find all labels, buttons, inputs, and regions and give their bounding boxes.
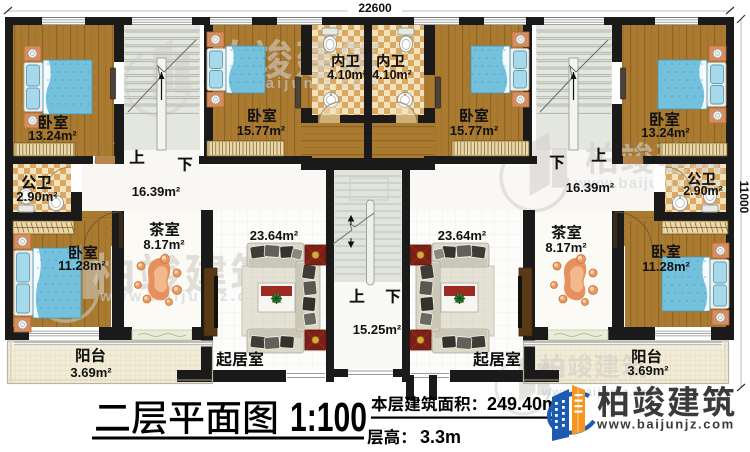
svg-text:3.3m: 3.3m [420,427,461,447]
svg-text:1:100: 1:100 [290,394,367,440]
svg-text:11.28m²: 11.28m² [58,258,106,273]
svg-text:16.39m²: 16.39m² [566,180,615,195]
svg-text:4.10m²: 4.10m² [327,68,367,82]
svg-text:3.69m²: 3.69m² [627,363,669,378]
svg-text:13.24m²: 13.24m² [641,125,690,140]
svg-text:2.90m²: 2.90m² [16,189,58,204]
svg-text:11.28m²: 11.28m² [642,259,690,274]
svg-text:8.17m²: 8.17m² [545,240,587,255]
svg-text:23.64m²: 23.64m² [250,228,299,243]
svg-text:3.69m²: 3.69m² [70,365,112,380]
svg-text:15.77m²: 15.77m² [237,123,286,138]
svg-text:15.25m²: 15.25m² [353,322,402,337]
svg-text:8.17m²: 8.17m² [143,237,185,252]
svg-text:22600: 22600 [358,1,392,15]
svg-text:4.10m²: 4.10m² [372,68,412,82]
svg-text:16.39m²: 16.39m² [132,184,181,199]
svg-text:2.90m²: 2.90m² [683,184,723,198]
svg-text:23.64m²: 23.64m² [438,228,487,243]
svg-text:15.77m²: 15.77m² [450,123,499,138]
svg-text:11000: 11000 [737,181,750,214]
svg-text:13.24m²: 13.24m² [28,128,77,143]
svg-text:www.baijunjz.com: www.baijunjz.com [596,417,735,432]
